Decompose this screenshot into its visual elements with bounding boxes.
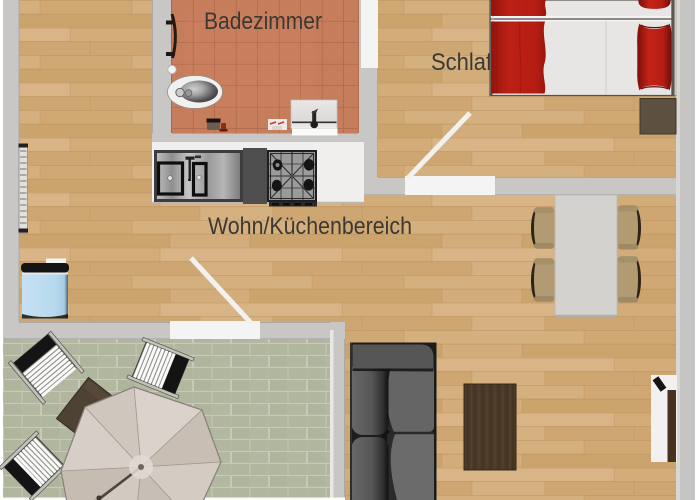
svg-text:Badezimmer: Badezimmer bbox=[204, 8, 322, 35]
svg-text:Wohn/Küchenbereich: Wohn/Küchenbereich bbox=[208, 213, 412, 240]
svg-text:Schlaf: Schlaf bbox=[431, 49, 492, 76]
